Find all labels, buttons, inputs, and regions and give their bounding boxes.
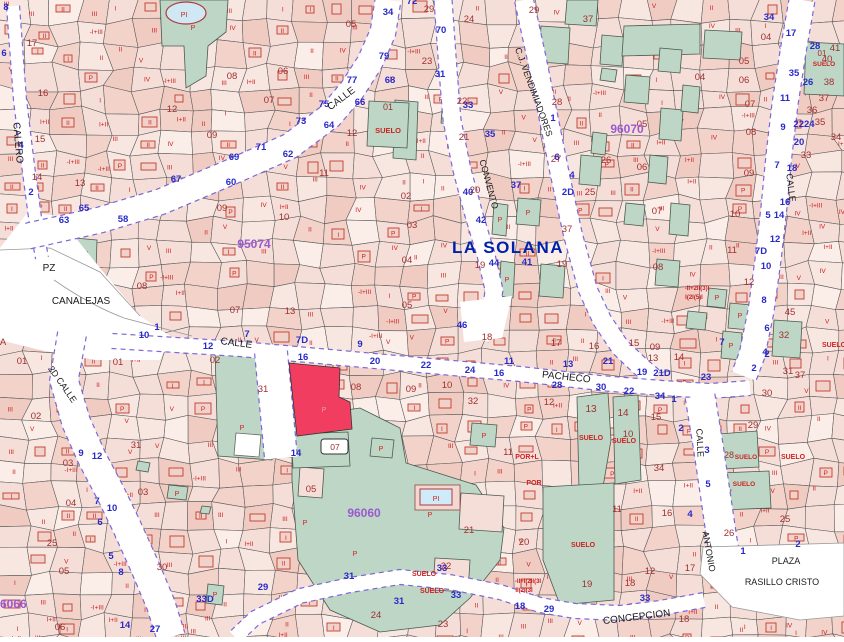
- svg-text:16: 16: [662, 508, 673, 519]
- svg-text:V: V: [410, 334, 415, 341]
- svg-text:I: I: [10, 493, 12, 500]
- svg-text:14: 14: [774, 210, 785, 221]
- svg-text:15: 15: [629, 338, 640, 349]
- svg-text:9: 9: [78, 448, 83, 459]
- svg-text:IV: IV: [441, 243, 448, 250]
- svg-text:-I+III: -I+III: [90, 29, 103, 36]
- svg-text:P: P: [715, 295, 720, 302]
- svg-text:III: III: [448, 443, 454, 450]
- svg-text:I+II: I+II: [553, 403, 562, 410]
- svg-text:II: II: [817, 416, 821, 423]
- svg-text:29: 29: [748, 420, 759, 431]
- svg-text:15: 15: [651, 412, 662, 423]
- svg-text:III: III: [308, 312, 314, 319]
- svg-text:44: 44: [489, 258, 500, 269]
- svg-text:I: I: [827, 356, 829, 363]
- svg-text:I: I: [556, 427, 558, 434]
- svg-text:10: 10: [442, 380, 453, 391]
- svg-text:07: 07: [745, 99, 756, 110]
- svg-text:11: 11: [780, 93, 791, 104]
- svg-text:33: 33: [801, 150, 812, 161]
- svg-text:II: II: [548, 186, 552, 193]
- svg-text:II: II: [345, 141, 349, 148]
- svg-text:34: 34: [831, 132, 842, 143]
- svg-text:P: P: [741, 188, 745, 195]
- svg-text:37: 37: [583, 14, 594, 25]
- svg-text:I+II: I+II: [417, 138, 426, 145]
- svg-text:-I+III: -I+III: [809, 202, 822, 209]
- svg-text:II: II: [335, 75, 339, 82]
- svg-text:I: I: [114, 5, 116, 12]
- svg-text:III: III: [113, 136, 119, 143]
- svg-text:I: I: [337, 232, 339, 239]
- svg-text:II: II: [709, 244, 713, 251]
- svg-text:68: 68: [385, 75, 396, 86]
- svg-text:I+II: I+II: [279, 204, 288, 211]
- svg-text:IV: IV: [230, 25, 237, 32]
- svg-text:-I+III: -I+III: [386, 319, 399, 326]
- svg-text:II: II: [580, 121, 584, 128]
- svg-text:33: 33: [640, 593, 651, 604]
- svg-text:73: 73: [296, 116, 307, 127]
- svg-text:III: III: [191, 628, 197, 635]
- svg-text:7D: 7D: [755, 246, 767, 257]
- svg-text:I+II: I+II: [177, 116, 186, 123]
- svg-text:I+II: I+II: [4, 225, 13, 232]
- svg-text:2: 2: [678, 423, 683, 434]
- svg-text:7: 7: [719, 337, 724, 348]
- svg-text:PI: PI: [433, 496, 440, 503]
- svg-text:I: I: [466, 628, 468, 635]
- svg-text:04: 04: [402, 255, 413, 266]
- svg-text:17: 17: [27, 38, 38, 49]
- svg-text:65: 65: [79, 203, 90, 214]
- svg-text:29: 29: [424, 4, 435, 15]
- svg-text:31: 31: [131, 440, 142, 451]
- svg-text:I: I: [602, 275, 604, 282]
- svg-text:P: P: [379, 446, 384, 453]
- svg-text:IV: IV: [719, 94, 726, 101]
- svg-text:I: I: [765, 23, 767, 30]
- svg-text:09: 09: [207, 130, 218, 141]
- svg-text:24: 24: [464, 14, 475, 25]
- svg-text:35: 35: [789, 68, 800, 79]
- svg-text:V: V: [499, 89, 504, 96]
- svg-text:45: 45: [785, 307, 796, 318]
- svg-text:6: 6: [1, 48, 6, 59]
- svg-text:PLAZA: PLAZA: [772, 556, 801, 566]
- svg-text:03: 03: [63, 458, 74, 469]
- svg-text:12: 12: [92, 451, 103, 462]
- svg-text:-I+III: -I+III: [358, 289, 371, 296]
- svg-text:13: 13: [285, 306, 296, 317]
- svg-text:V: V: [804, 388, 809, 395]
- svg-text:P: P: [232, 271, 236, 278]
- svg-text:III: III: [167, 562, 173, 569]
- svg-text:II: II: [148, 120, 152, 127]
- svg-text:II: II: [67, 513, 71, 520]
- svg-text:4: 4: [762, 347, 768, 358]
- svg-text:SUELO: SUELO: [375, 126, 401, 135]
- svg-text:1: 1: [671, 394, 677, 405]
- svg-text:II: II: [476, 6, 480, 13]
- svg-text:I+II: I+II: [823, 244, 832, 251]
- svg-text:I: I: [172, 383, 174, 390]
- svg-text:12: 12: [744, 277, 755, 288]
- svg-text:II: II: [64, 206, 68, 213]
- svg-text:I: I: [389, 293, 391, 300]
- svg-text:IV: IV: [553, 9, 560, 16]
- svg-text:26: 26: [724, 528, 735, 539]
- svg-text:4: 4: [687, 509, 693, 520]
- svg-text:III: III: [312, 176, 318, 183]
- svg-text:PI: PI: [181, 12, 188, 19]
- svg-text:12: 12: [770, 234, 781, 245]
- svg-text:P: P: [89, 75, 93, 82]
- svg-text:II: II: [95, 185, 99, 192]
- svg-text:I: I: [228, 249, 230, 256]
- svg-text:46: 46: [457, 320, 468, 331]
- svg-text:03: 03: [407, 220, 418, 231]
- svg-text:I: I: [474, 471, 476, 478]
- svg-text:P: P: [201, 406, 205, 413]
- svg-text:I: I: [750, 538, 752, 545]
- svg-text:1: 1: [550, 113, 556, 124]
- svg-text:II: II: [96, 382, 100, 389]
- svg-text:1: 1: [154, 322, 160, 333]
- svg-text:11: 11: [727, 245, 737, 256]
- svg-text:I: I: [90, 537, 92, 544]
- svg-text:37: 37: [511, 180, 522, 191]
- svg-text:II: II: [764, 96, 768, 103]
- svg-text:12: 12: [167, 104, 178, 115]
- svg-text:P: P: [240, 425, 245, 432]
- svg-text:35: 35: [815, 117, 826, 128]
- svg-text:16: 16: [494, 368, 505, 379]
- svg-text:8: 8: [118, 567, 123, 578]
- svg-text:III: III: [521, 624, 527, 631]
- svg-text:II: II: [402, 179, 406, 186]
- svg-text:05: 05: [59, 566, 70, 577]
- svg-text:41: 41: [522, 257, 533, 268]
- svg-text:6: 6: [764, 323, 769, 334]
- svg-text:18: 18: [515, 601, 526, 612]
- svg-text:14: 14: [120, 620, 131, 631]
- svg-text:SUELO: SUELO: [412, 571, 437, 578]
- svg-text:31: 31: [344, 571, 355, 582]
- svg-text:P: P: [578, 207, 582, 214]
- svg-text:SUELO: SUELO: [571, 542, 596, 549]
- svg-text:96066: 96066: [0, 597, 27, 611]
- svg-text:P: P: [729, 343, 734, 350]
- svg-text:I+II: I+II: [246, 79, 255, 86]
- svg-text:IV: IV: [689, 271, 696, 278]
- svg-text:II: II: [72, 531, 76, 538]
- svg-text:II: II: [226, 142, 230, 149]
- svg-text:2D: 2D: [562, 187, 574, 198]
- svg-text:II: II: [630, 187, 634, 194]
- svg-text:II: II: [282, 561, 286, 568]
- svg-text:19: 19: [557, 259, 568, 270]
- svg-text:II: II: [635, 516, 639, 523]
- svg-text:SUELO: SUELO: [822, 342, 844, 349]
- svg-text:I+II: I+II: [802, 230, 811, 237]
- svg-text:CANALEJAS: CANALEJAS: [52, 296, 111, 307]
- svg-text:18: 18: [679, 614, 690, 625]
- svg-text:29: 29: [529, 5, 540, 16]
- svg-text:P: P: [412, 293, 416, 300]
- svg-text:P: P: [824, 470, 828, 477]
- svg-text:II: II: [61, 6, 65, 13]
- svg-text:22: 22: [457, 96, 468, 107]
- svg-text:IV: IV: [765, 426, 772, 433]
- svg-text:III: III: [424, 94, 430, 101]
- svg-text:I+II: I+II: [633, 488, 642, 495]
- svg-text:SUELO: SUELO: [579, 435, 604, 442]
- svg-text:V: V: [669, 574, 674, 581]
- svg-text:63: 63: [59, 215, 70, 226]
- svg-text:13: 13: [75, 178, 86, 189]
- svg-text:V: V: [526, 562, 531, 569]
- svg-text:SUELO: SUELO: [420, 588, 445, 595]
- svg-text:35: 35: [485, 129, 496, 140]
- svg-text:02: 02: [31, 411, 42, 422]
- svg-text:5: 5: [108, 551, 114, 562]
- svg-text:V: V: [170, 406, 175, 413]
- svg-text:95074: 95074: [237, 237, 271, 251]
- svg-text:04: 04: [695, 72, 706, 83]
- svg-text:IV: IV: [786, 622, 793, 629]
- svg-text:I(2I(5)I: I(2I(5)I: [685, 295, 703, 301]
- svg-text:14: 14: [617, 408, 629, 419]
- svg-text:III: III: [626, 319, 632, 326]
- svg-text:II: II: [309, 92, 313, 99]
- svg-text:II: II: [475, 602, 479, 609]
- svg-text:17: 17: [551, 338, 562, 349]
- svg-text:II: II: [93, 513, 97, 520]
- svg-text:V: V: [124, 418, 129, 425]
- svg-text:I+II: I+II: [244, 541, 253, 548]
- svg-text:P: P: [322, 407, 327, 414]
- svg-text:I: I: [86, 487, 88, 494]
- svg-text:III: III: [236, 467, 242, 474]
- svg-text:II: II: [199, 513, 203, 520]
- svg-text:16: 16: [298, 352, 309, 363]
- svg-text:26: 26: [601, 155, 612, 166]
- svg-text:-I+III: -I+III: [163, 78, 176, 85]
- svg-text:06: 06: [739, 75, 750, 86]
- svg-text:II: II: [798, 405, 802, 412]
- svg-text:-I+III: -I+III: [518, 161, 531, 168]
- svg-text:I: I: [655, 77, 657, 84]
- svg-text:-II+I(2II(3I: -II+I(2II(3I: [515, 579, 542, 585]
- svg-text:22: 22: [421, 360, 432, 371]
- svg-text:II: II: [812, 485, 816, 492]
- svg-text:SUELO: SUELO: [733, 481, 755, 488]
- svg-text:II(2I(3I: II(2I(3I: [515, 588, 533, 594]
- svg-text:POR+L: POR+L: [515, 454, 539, 461]
- svg-text:13: 13: [563, 359, 574, 370]
- svg-text:V: V: [532, 137, 537, 144]
- svg-text:II: II: [550, 360, 554, 367]
- svg-text:V: V: [386, 339, 391, 346]
- svg-text:12: 12: [544, 397, 555, 408]
- svg-text:P: P: [175, 491, 180, 498]
- svg-text:7: 7: [774, 160, 779, 171]
- svg-text:-I+III: -I+III: [742, 113, 755, 120]
- svg-text:16: 16: [38, 88, 49, 99]
- svg-text:II: II: [43, 33, 47, 40]
- svg-text:IV: IV: [167, 141, 174, 148]
- svg-text:I: I: [421, 206, 423, 213]
- svg-text:32: 32: [779, 330, 790, 341]
- svg-text:V: V: [825, 318, 830, 325]
- svg-text:9: 9: [780, 122, 785, 133]
- svg-text:I: I: [310, 7, 312, 14]
- svg-text:III: III: [208, 442, 214, 449]
- svg-text:34: 34: [655, 391, 666, 402]
- svg-text:67: 67: [171, 174, 182, 185]
- svg-text:20: 20: [519, 537, 530, 548]
- svg-text:31: 31: [394, 596, 405, 607]
- svg-text:64: 64: [324, 120, 335, 131]
- svg-text:P: P: [391, 230, 395, 237]
- svg-text:19: 19: [475, 260, 486, 271]
- svg-text:14: 14: [674, 352, 685, 363]
- svg-text:III: III: [154, 512, 160, 519]
- svg-text:96070: 96070: [610, 122, 644, 136]
- svg-text:5: 5: [705, 479, 711, 490]
- svg-text:01: 01: [113, 357, 124, 368]
- svg-text:IV: IV: [709, 23, 716, 30]
- svg-text:II: II: [693, 552, 697, 559]
- svg-text:I: I: [441, 426, 443, 433]
- svg-text:15: 15: [35, 134, 46, 145]
- svg-text:P: P: [303, 520, 308, 527]
- svg-text:12: 12: [347, 128, 358, 139]
- svg-text:V: V: [443, 308, 448, 315]
- svg-text:33D: 33D: [196, 594, 214, 605]
- svg-text:I: I: [282, 6, 284, 13]
- svg-text:18: 18: [625, 578, 636, 589]
- svg-text:P: P: [738, 313, 743, 320]
- svg-text:III: III: [610, 190, 616, 197]
- svg-text:I: I: [524, 186, 526, 193]
- svg-text:8: 8: [3, 2, 8, 13]
- svg-text:08: 08: [227, 71, 238, 82]
- svg-text:II: II: [598, 112, 602, 119]
- svg-text:13: 13: [585, 404, 597, 415]
- svg-text:I: I: [795, 630, 797, 637]
- svg-text:IV: IV: [794, 210, 801, 217]
- svg-text:03: 03: [138, 487, 149, 498]
- svg-text:24: 24: [371, 610, 382, 621]
- svg-text:II: II: [421, 153, 425, 160]
- svg-text:II: II: [125, 583, 129, 590]
- svg-text:28: 28: [552, 97, 563, 108]
- svg-text:30: 30: [157, 562, 168, 573]
- svg-text:II: II: [281, 28, 285, 35]
- svg-text:II: II: [740, 627, 744, 634]
- svg-text:06: 06: [55, 622, 66, 633]
- svg-text:42: 42: [476, 215, 487, 226]
- svg-text:V: V: [155, 443, 160, 450]
- svg-text:-I+III: -I+III: [369, 333, 382, 340]
- svg-text:06: 06: [278, 66, 289, 77]
- svg-text:III: III: [441, 273, 447, 280]
- svg-text:I: I: [661, 100, 663, 107]
- svg-text:I+II: I+II: [656, 140, 665, 147]
- svg-text:I: I: [17, 626, 19, 633]
- svg-text:I: I: [715, 336, 717, 343]
- svg-text:2: 2: [795, 539, 800, 550]
- svg-text:P: P: [445, 338, 449, 345]
- svg-text:11: 11: [612, 504, 622, 515]
- svg-text:P: P: [228, 209, 232, 216]
- svg-text:II: II: [41, 163, 45, 170]
- svg-text:II: II: [567, 96, 571, 103]
- svg-text:10: 10: [761, 261, 772, 272]
- svg-text:14: 14: [32, 172, 43, 183]
- svg-text:07: 07: [264, 95, 275, 106]
- svg-text:04: 04: [66, 498, 77, 509]
- svg-text:III: III: [40, 600, 46, 607]
- svg-text:III: III: [605, 288, 611, 295]
- svg-text:31: 31: [435, 69, 446, 80]
- svg-text:P: P: [524, 423, 528, 430]
- svg-text:II: II: [204, 230, 208, 237]
- svg-text:24: 24: [465, 365, 476, 376]
- svg-text:I: I: [144, 607, 146, 614]
- svg-text:P: P: [149, 274, 153, 281]
- svg-text:IV: IV: [340, 47, 347, 54]
- svg-text:III: III: [548, 618, 554, 625]
- svg-text:III: III: [282, 516, 288, 523]
- svg-text:09: 09: [406, 384, 417, 395]
- svg-text:I+II: I+II: [176, 290, 185, 297]
- svg-text:P: P: [191, 25, 196, 32]
- svg-text:7: 7: [94, 496, 99, 507]
- svg-text:IV: IV: [819, 223, 826, 230]
- svg-text:II: II: [310, 48, 314, 55]
- svg-text:2: 2: [28, 187, 33, 198]
- svg-text:33: 33: [451, 590, 462, 601]
- svg-text:19: 19: [582, 579, 593, 590]
- svg-text:III: III: [8, 156, 14, 163]
- svg-text:20: 20: [370, 356, 381, 367]
- svg-text:13: 13: [648, 353, 659, 364]
- svg-text:LA SOLANA: LA SOLANA: [452, 238, 564, 257]
- svg-text:II: II: [740, 511, 744, 518]
- svg-text:CALLE: CALLE: [694, 428, 705, 457]
- svg-text:II: II: [308, 227, 312, 234]
- svg-text:21: 21: [459, 132, 470, 143]
- svg-text:I: I: [744, 624, 746, 631]
- svg-text:POR: POR: [526, 480, 541, 487]
- svg-text:-I+III: -I+III: [98, 166, 111, 173]
- svg-text:IV: IV: [820, 268, 827, 275]
- svg-text:02: 02: [210, 355, 221, 366]
- svg-text:28: 28: [810, 41, 821, 52]
- svg-text:P: P: [482, 433, 487, 440]
- svg-text:P: P: [118, 163, 122, 170]
- svg-text:18: 18: [482, 332, 493, 343]
- svg-text:I: I: [770, 625, 772, 632]
- svg-text:-I+III: -I+III: [661, 318, 674, 325]
- svg-text:V: V: [522, 114, 527, 121]
- svg-text:-I+III: -I+III: [652, 248, 665, 255]
- svg-text:SUELO: SUELO: [735, 454, 757, 461]
